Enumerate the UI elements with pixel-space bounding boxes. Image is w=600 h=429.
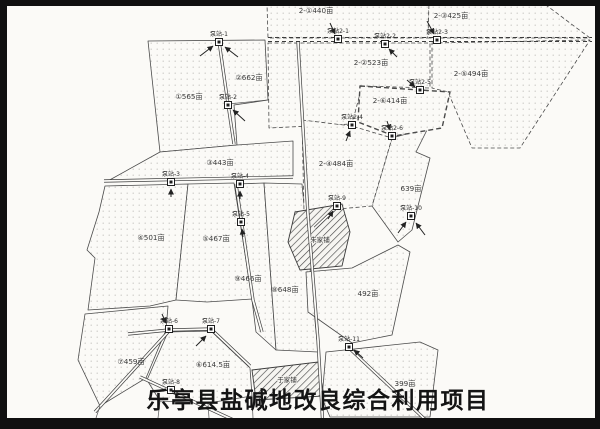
scan-frame-top <box>0 0 600 6</box>
pump-station-label-b6: 泵站-6 <box>160 317 178 325</box>
pump-station-symbol-core <box>240 221 243 224</box>
parcel-label-9: ⑨466亩 <box>234 274 261 283</box>
pump-station-label-b9: 泵站-9 <box>328 194 346 202</box>
pump-station-symbol-core <box>210 328 213 331</box>
parcel-label-5: ⑤467亩 <box>202 234 229 243</box>
map-title: 乐亭县盐碱地改良综合利用项目 <box>147 387 490 414</box>
pump-station-symbol-core <box>384 43 387 46</box>
parcel-label-2-4: 2-④484亩 <box>319 159 354 168</box>
pump-station-symbol-core <box>336 205 339 208</box>
parcel-4-shape <box>87 184 188 310</box>
scan-frame-left <box>0 0 7 429</box>
parcel-label-492: 492亩 <box>358 289 379 298</box>
village-yu-label: 于家铺 <box>277 375 297 384</box>
pump-station-label-b1: 泵站-1 <box>210 30 228 38</box>
pump-station-label-b3: 泵站-3 <box>162 170 180 178</box>
pump-station-label-c4: 泵站2-4 <box>341 113 363 121</box>
parcel-label-4: ④501亩 <box>137 233 164 242</box>
parcel-label-2-1: 2-①440亩 <box>299 6 334 15</box>
pump-station-label-c3: 泵站2-3 <box>426 28 448 36</box>
pump-station-label-b4: 泵站-4 <box>231 172 249 180</box>
pump-station-symbol-core <box>410 215 413 218</box>
pump-station-symbol-core <box>168 328 171 331</box>
map-canvas: 泵站-1泵站-2泵站-3泵站-4泵站-5泵站-6泵站-7泵站-8泵站-9泵站-1… <box>0 0 600 429</box>
pump-station-symbol-core <box>351 124 354 127</box>
pump-station-label-b11: 泵站-11 <box>338 335 360 343</box>
pump-station-symbol-core <box>348 346 351 349</box>
pump-station-label-c5: 泵站2-5 <box>409 78 431 86</box>
pump-station-symbol-core <box>337 38 340 41</box>
pump-station-label-c2: 泵站2-2 <box>374 32 396 40</box>
pump-station-symbol-core <box>436 39 439 42</box>
parcel-label-2-2: 2-②523亩 <box>354 58 389 67</box>
parcel-label-6: ⑥614.5亩 <box>196 360 230 369</box>
pump-station-label-c6: 泵站2-6 <box>381 124 403 132</box>
pump-station-symbol-core <box>239 183 242 186</box>
parcel-label-7: ⑦459亩 <box>117 357 144 366</box>
parcel-label-1: ①565亩 <box>175 92 202 101</box>
scanned-land-parcel-map: 泵站-1泵站-2泵站-3泵站-4泵站-5泵站-6泵站-7泵站-8泵站-9泵站-1… <box>0 0 600 429</box>
pump-station-label-c1: 泵站2-1 <box>327 27 349 35</box>
pump-station-symbol-core <box>227 104 230 107</box>
pump-station-label-b7: 泵站-7 <box>202 317 220 325</box>
parcel-label-8: ⑧648亩 <box>271 285 298 294</box>
parcel-label-2-3: 2-③425亩 <box>434 11 469 20</box>
village-zhu-label: 朱家铺 <box>310 235 330 244</box>
parcel-label-2: ②662亩 <box>235 73 262 82</box>
scan-frame-bottom <box>0 418 600 429</box>
parcel-label-639: 639亩 <box>401 184 422 193</box>
pump-station-label-b5: 泵站-5 <box>232 210 250 218</box>
scan-frame-right <box>595 0 600 429</box>
parcel-label-399: 399亩 <box>395 379 416 388</box>
pump-station-symbol-core <box>218 41 221 44</box>
pump-station-label-b10: 泵站-10 <box>400 204 422 212</box>
pump-station-symbol-core <box>419 89 422 92</box>
pump-station-symbol-core <box>391 135 394 138</box>
parcel-label-2-5: 2-⑤494亩 <box>454 69 489 78</box>
pump-station-symbol-core <box>170 181 173 184</box>
parcel-label-3: ③443亩 <box>206 158 233 167</box>
pump-station-label-b8: 泵站-8 <box>162 378 180 386</box>
parcel-label-2-6: 2-⑥414亩 <box>373 96 408 105</box>
pump-station-label-b2: 泵站-2 <box>219 93 237 101</box>
